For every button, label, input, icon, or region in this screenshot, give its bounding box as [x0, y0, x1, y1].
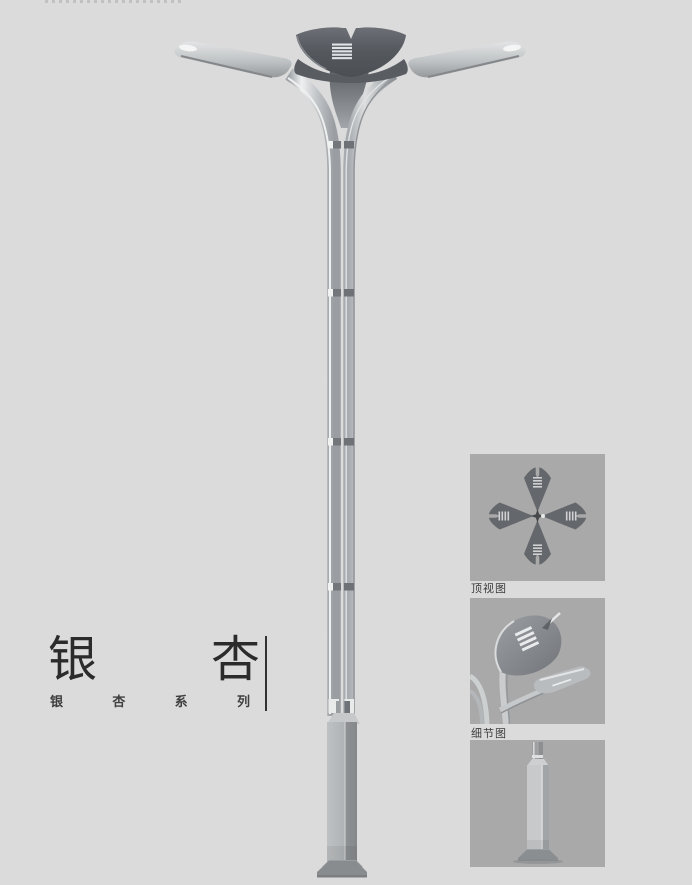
detail-view-panel — [470, 598, 605, 724]
top-view-label: 顶视图 — [471, 582, 507, 596]
series-char: 列 — [237, 691, 250, 710]
base-column — [327, 713, 360, 862]
detail-view-label: 细节图 — [471, 727, 507, 741]
left-lamp-head — [174, 42, 291, 78]
series-char: 杏 — [112, 691, 125, 710]
base-plate — [317, 860, 367, 878]
series-label: 银 杏 系 列 — [50, 691, 250, 710]
catalog-page: 银 杏 银 杏 系 列 — [0, 0, 692, 885]
title-char-1: 银 — [48, 634, 97, 688]
series-char: 系 — [175, 691, 188, 710]
right-lamp-head — [408, 42, 525, 78]
ginkgo-crown — [294, 27, 407, 83]
left-arm-tube — [288, 74, 334, 716]
title-char-2: 杏 — [211, 634, 260, 688]
right-arm-tube — [346, 74, 396, 716]
base-column-detail — [527, 759, 549, 851]
detail-view-drawing — [470, 598, 605, 724]
top-view-drawing — [470, 454, 605, 581]
product-title: 银 杏 — [48, 634, 260, 688]
base-view-panel — [470, 740, 605, 867]
base-view-drawing — [470, 740, 605, 867]
top-view-panel — [470, 454, 605, 581]
title-divider-line — [265, 636, 267, 711]
series-char: 银 — [50, 691, 63, 710]
tube-end-slots — [329, 699, 355, 713]
